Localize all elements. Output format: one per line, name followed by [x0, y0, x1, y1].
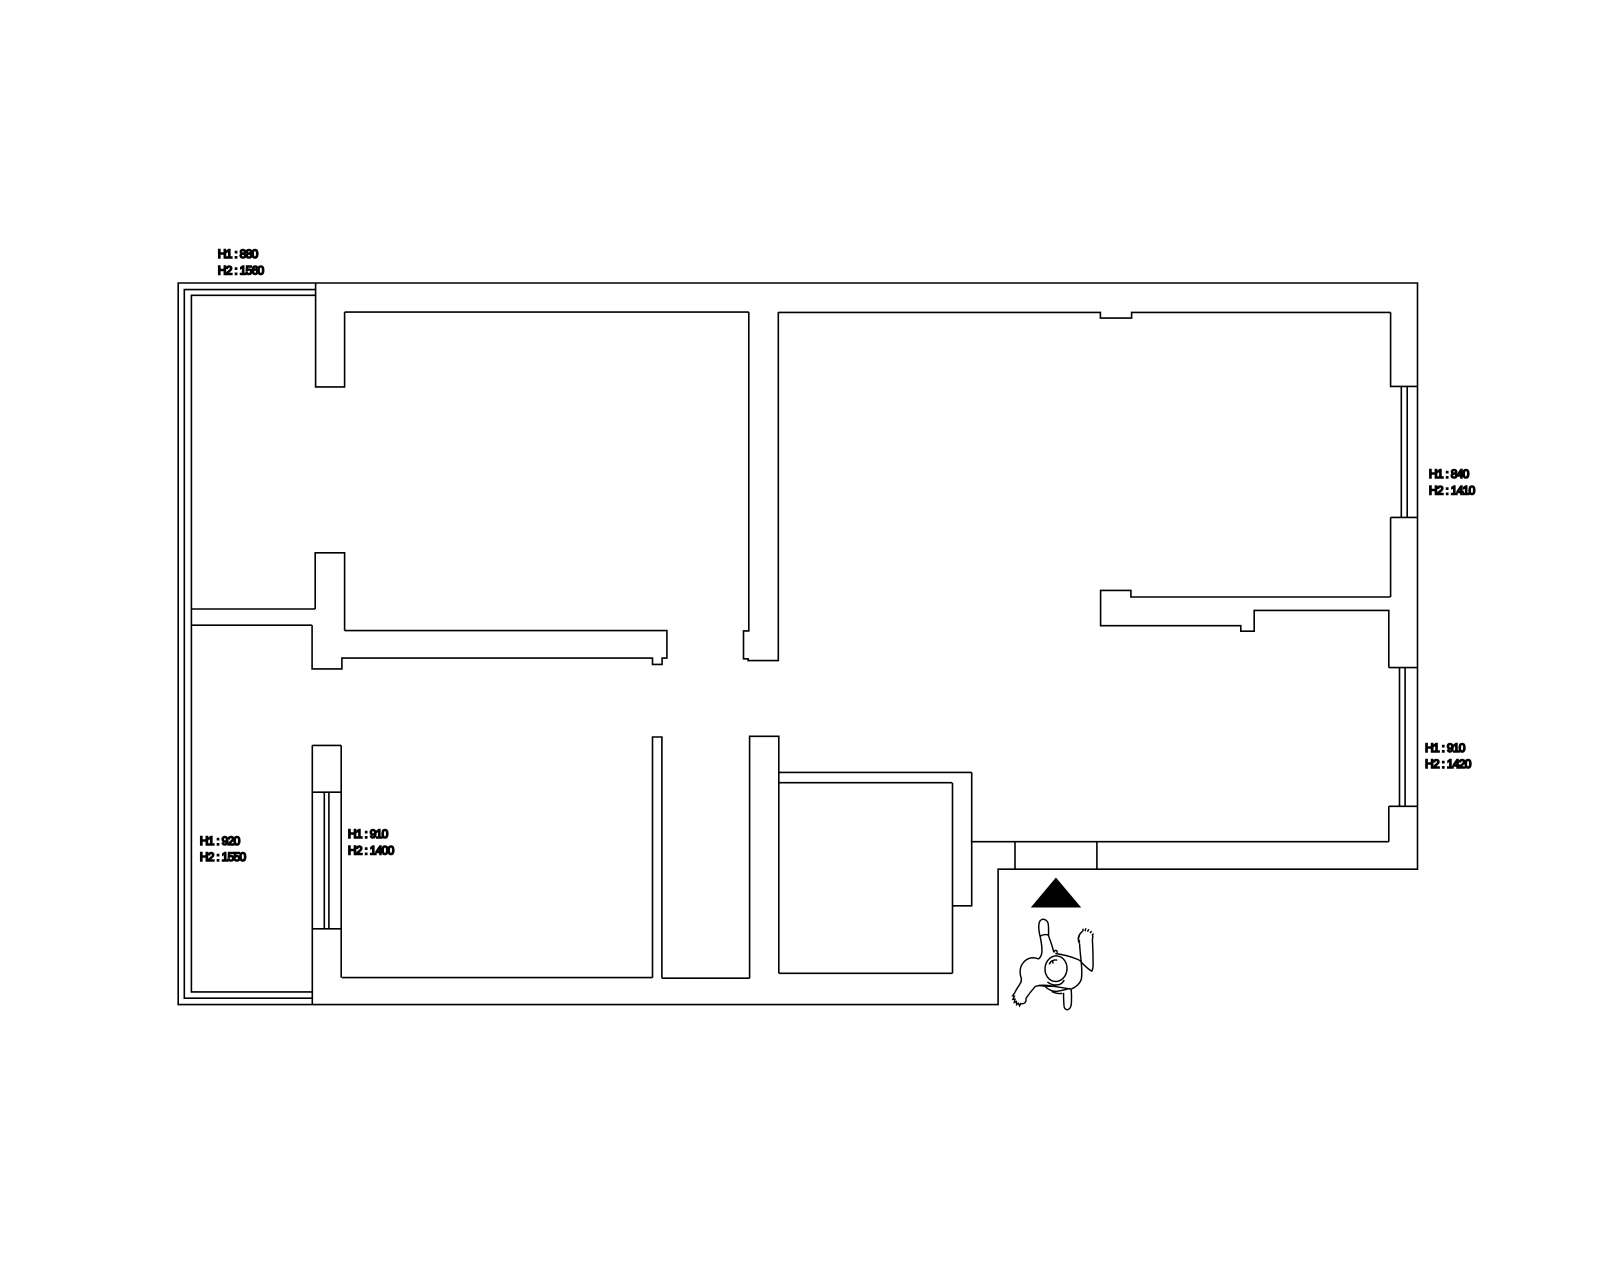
svg-text:H2 : 1560: H2 : 1560 [218, 264, 265, 278]
svg-text:H1 : 920: H1 : 920 [200, 834, 241, 848]
svg-text:H1 : 910: H1 : 910 [348, 827, 389, 841]
svg-text:H2 : 1420: H2 : 1420 [1425, 757, 1472, 771]
svg-text:H2 : 1550: H2 : 1550 [200, 850, 247, 864]
svg-text:H1 : 840: H1 : 840 [1429, 467, 1470, 481]
svg-text:H1 : 880: H1 : 880 [218, 247, 259, 261]
svg-text:H2 : 1410: H2 : 1410 [1429, 483, 1476, 497]
svg-text:H1 : 910: H1 : 910 [1425, 741, 1466, 755]
svg-text:H2 : 1400: H2 : 1400 [348, 844, 395, 858]
